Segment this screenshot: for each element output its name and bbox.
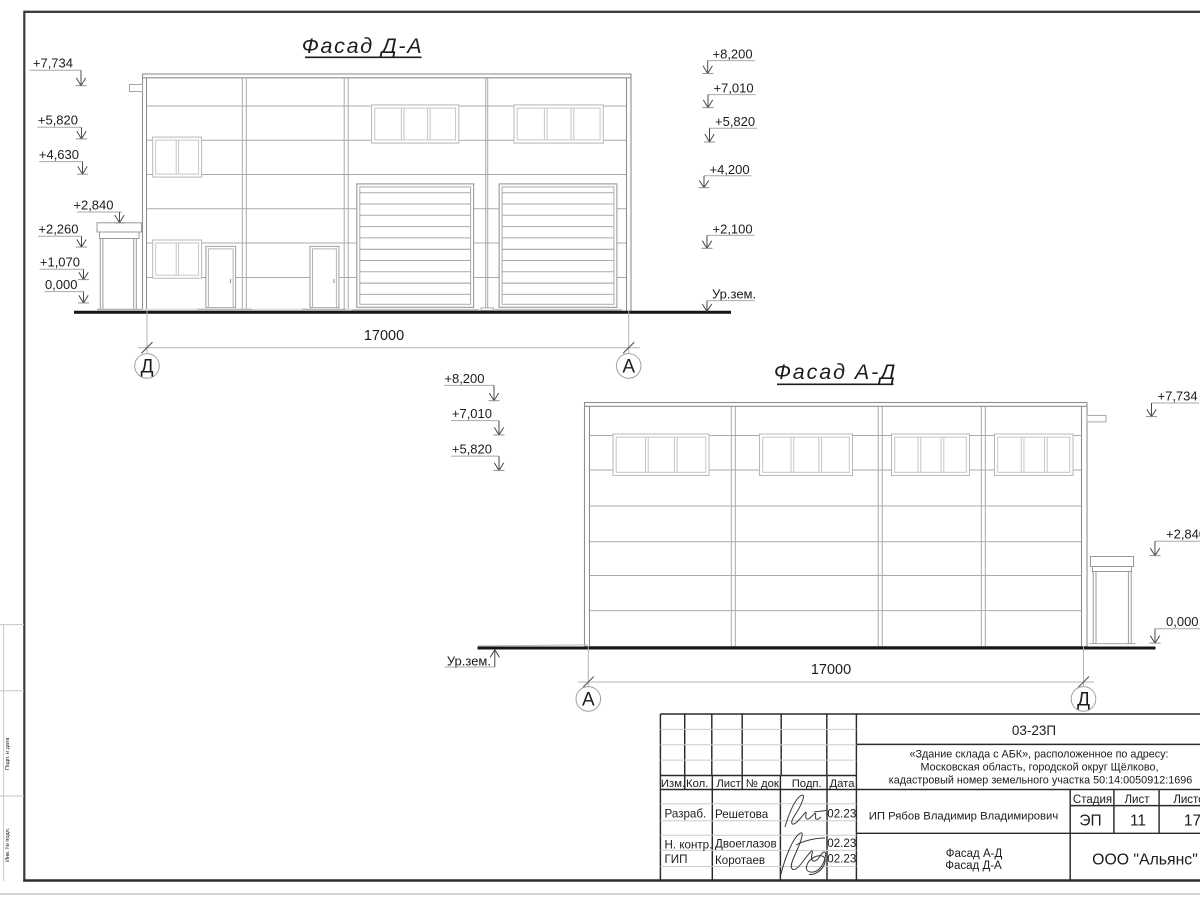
svg-text:Н. контр.: Н. контр. bbox=[665, 839, 713, 852]
svg-text:А: А bbox=[622, 357, 635, 378]
svg-text:Лист: Лист bbox=[1125, 794, 1151, 806]
svg-text:Решетова: Решетова bbox=[715, 808, 769, 821]
svg-text:+7,734: +7,734 bbox=[1158, 388, 1198, 403]
svg-text:+1,070: +1,070 bbox=[40, 255, 80, 270]
svg-text:Фасад Д-А: Фасад Д-А bbox=[302, 34, 424, 58]
svg-text:+2,840: +2,840 bbox=[1166, 527, 1200, 542]
svg-text:Московская область, городской: Московская область, городской округ Щёлк… bbox=[920, 762, 1158, 774]
svg-text:ИП Рябов Владимир Владимирович: ИП Рябов Владимир Владимирович bbox=[869, 810, 1059, 822]
svg-text:0,000: 0,000 bbox=[1166, 614, 1199, 629]
svg-text:кадастровый номер земельного у: кадастровый номер земельного участка 50:… bbox=[889, 774, 1192, 786]
svg-text:+8,200: +8,200 bbox=[713, 47, 753, 62]
svg-text:+4,630: +4,630 bbox=[39, 147, 79, 162]
svg-text:А: А bbox=[582, 690, 595, 711]
svg-text:ЭП: ЭП bbox=[1079, 813, 1101, 830]
svg-text:02.23: 02.23 bbox=[827, 852, 856, 865]
svg-text:11: 11 bbox=[1130, 813, 1146, 830]
svg-text:Двоеглазов: Двоеглазов bbox=[715, 838, 777, 851]
svg-text:Подп. и дата: Подп. и дата bbox=[5, 737, 11, 770]
svg-text:Стадия: Стадия bbox=[1073, 794, 1112, 806]
svg-text:+7,734: +7,734 bbox=[33, 56, 73, 71]
svg-text:0,000: 0,000 bbox=[45, 277, 78, 292]
svg-text:+2,260: +2,260 bbox=[38, 222, 78, 237]
svg-text:Ур.зем.: Ур.зем. bbox=[712, 286, 756, 301]
svg-text:ООО "Альянс": ООО "Альянс" bbox=[1092, 852, 1198, 869]
svg-text:17000: 17000 bbox=[364, 328, 404, 344]
svg-text:Разраб.: Разраб. bbox=[665, 807, 707, 820]
svg-text:Фасад А-Д: Фасад А-Д bbox=[946, 848, 1003, 860]
svg-text:Фасад Д-А: Фасад Д-А bbox=[945, 860, 1002, 872]
svg-text:Кол.: Кол. bbox=[686, 778, 708, 790]
svg-text:Ур.зем.: Ур.зем. bbox=[447, 653, 491, 668]
svg-text:Листов: Листов bbox=[1173, 794, 1200, 806]
svg-text:+5,820: +5,820 bbox=[715, 114, 755, 129]
svg-text:Лист: Лист bbox=[716, 778, 741, 790]
svg-text:+2,840: +2,840 bbox=[73, 198, 113, 213]
svg-text:+5,820: +5,820 bbox=[38, 113, 78, 128]
svg-text:«Здание склада с АБК», располо: «Здание склада с АБК», расположенное по … bbox=[909, 748, 1168, 760]
svg-text:02.23: 02.23 bbox=[827, 808, 856, 821]
svg-text:+5,820: +5,820 bbox=[452, 442, 492, 457]
svg-text:Дата: Дата bbox=[829, 778, 855, 790]
svg-text:+4,200: +4,200 bbox=[710, 162, 750, 177]
svg-text:Изм.: Изм. bbox=[661, 778, 685, 790]
svg-text:Фасад А-Д: Фасад А-Д bbox=[774, 360, 897, 384]
svg-text:+8,200: +8,200 bbox=[444, 371, 484, 386]
svg-text:+7,010: +7,010 bbox=[714, 81, 754, 96]
svg-text:ГИП: ГИП bbox=[665, 853, 688, 866]
svg-text:+2,100: +2,100 bbox=[713, 221, 753, 236]
svg-text:+7,010: +7,010 bbox=[452, 406, 492, 421]
svg-text:17: 17 bbox=[1184, 813, 1200, 830]
svg-text:№ док.: № док. bbox=[746, 778, 782, 790]
svg-text:17000: 17000 bbox=[811, 662, 851, 678]
svg-text:Инв. № подл.: Инв. № подл. bbox=[5, 827, 11, 862]
svg-text:Подп.: Подп. bbox=[792, 778, 822, 790]
svg-text:02.23: 02.23 bbox=[827, 837, 856, 850]
svg-text:Коротаев: Коротаев bbox=[715, 854, 765, 867]
svg-text:03-23П: 03-23П bbox=[1012, 723, 1056, 738]
svg-text:Д: Д bbox=[1077, 690, 1090, 711]
svg-text:Д: Д bbox=[141, 357, 154, 378]
